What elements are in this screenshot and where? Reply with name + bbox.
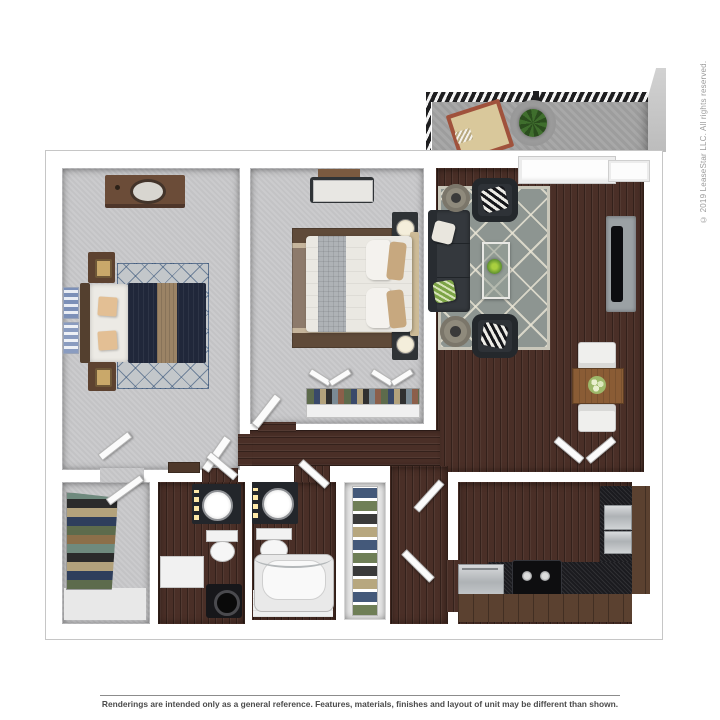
floor-plan [0,0,720,720]
armchair-bottom-pillow [480,322,509,350]
living-room-window [608,160,650,182]
sofa-pillow-green [432,279,456,303]
bedroom-1-door-opening [238,434,252,466]
balcony-side-rail [426,92,431,152]
balcony-end-wall [648,68,666,152]
linen-closet-shelves [352,486,378,616]
dining-table-flowers [588,376,606,394]
dining-chair-bottom [578,404,616,432]
stove-knob-left [522,571,532,581]
bedroom-1-wall-art [63,287,79,319]
balcony-plant [519,109,547,137]
bedroom-1-accent-pillow-bottom [97,330,117,350]
bedroom-1-lamp-bottom [95,368,112,387]
bedroom-1-accent-pillow-top [97,296,117,316]
walk-in-closet-lower-floor [64,588,146,620]
copyright-text: © 2019 LeaseStar LLC. All rights reserve… [699,14,712,224]
stove [512,560,562,596]
bathroom-1-sink [202,490,233,521]
living-room-sofa-seam-2 [437,277,470,278]
wall-oven [604,505,632,530]
bedroom-2-dresser-top [313,180,373,202]
bathroom-2-sink [262,488,294,520]
hallway-floor [250,430,440,466]
washer-door [214,590,240,616]
bedroom-2-door-opening [258,422,296,432]
stove-knob-right [540,571,550,581]
bedroom-2-bed-runner [318,236,346,332]
bathroom-2-vanity-lights [253,488,258,518]
balcony-slider-door [518,156,616,184]
bathroom-1-vanity-lights [194,490,199,520]
bedroom-1-bed-pillow-section [90,284,128,362]
dining-chair-top [578,342,616,370]
divider-line [100,695,620,696]
bedroom-1-comforter-stripe [157,283,177,363]
bedroom-1-door-mat [168,462,200,473]
bedroom-1-wall-art-2 [63,322,79,354]
coffee-table-plant [487,259,502,274]
bedroom-1-dresser-knob [115,185,120,190]
disclaimer-text: Renderings are intended only as a genera… [0,699,720,709]
bedroom-1-dresser-mirror [130,179,166,204]
refrigerator-handle [462,568,498,570]
walk-in-closet-clothes [66,492,118,590]
bathroom-1-toilet-bowl [210,541,235,562]
side-table-top-bowl [451,193,461,203]
bathroom-1-cabinet [160,556,204,588]
bedroom-1-lamp-top [95,259,112,278]
tv-screen [611,226,623,302]
shower-curtain-rod [254,548,332,568]
kitchen-cabinets-bottom [458,594,632,622]
side-table-bottom-bowl [450,326,461,337]
bedroom-2-closet-shelf [306,404,420,418]
kitchen-cabinets-right [630,486,650,594]
bedroom-1-bed-headboard [80,283,90,363]
bedroom-2-lamp-bottom [396,335,415,354]
microwave [604,531,632,554]
bedroom-2-wall-shelf [318,169,360,177]
